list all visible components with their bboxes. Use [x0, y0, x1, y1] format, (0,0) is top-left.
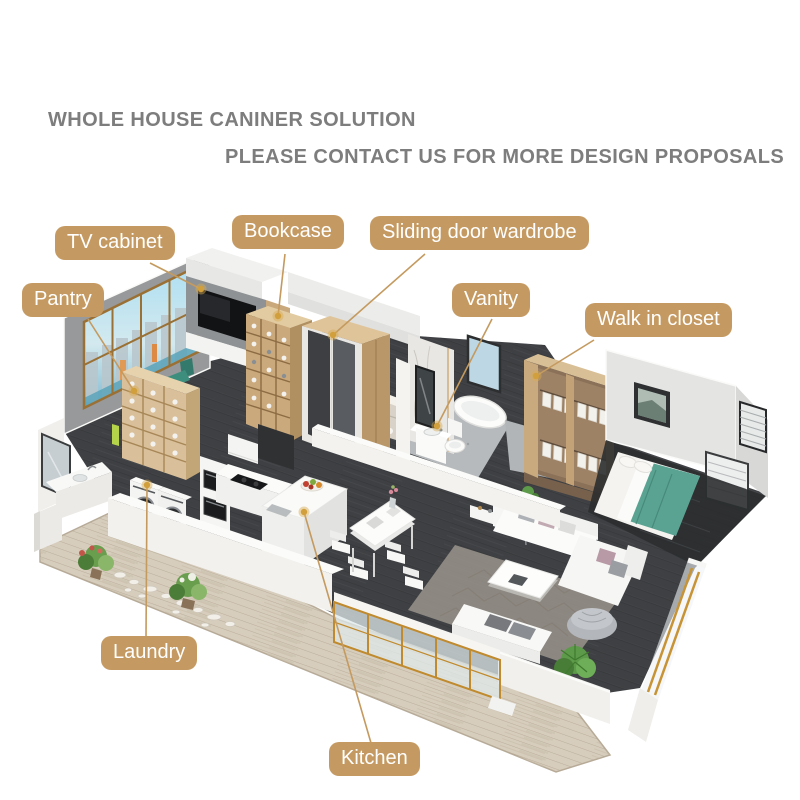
label-tv-cabinet: TV cabinet — [55, 226, 175, 260]
headline-secondary: PLEASE CONTACT US FOR MORE DESIGN PROPOS… — [225, 146, 784, 169]
bedroom-window — [740, 402, 766, 452]
headline-primary: WHOLE HOUSE CANINER SOLUTION — [48, 109, 416, 132]
label-bookcase: Bookcase — [232, 215, 344, 249]
label-laundry: Laundry — [101, 636, 197, 670]
label-pantry: Pantry — [22, 283, 104, 317]
bathroom-window — [468, 336, 500, 392]
label-kitchen: Kitchen — [329, 742, 420, 776]
label-walk-in-closet: Walk in closet — [585, 303, 732, 337]
vase — [389, 497, 396, 509]
label-sliding-door-wardrobe: Sliding door wardrobe — [370, 216, 589, 250]
label-vanity: Vanity — [452, 283, 530, 317]
page: WHOLE HOUSE CANINER SOLUTION PLEASE CONT… — [0, 0, 800, 800]
